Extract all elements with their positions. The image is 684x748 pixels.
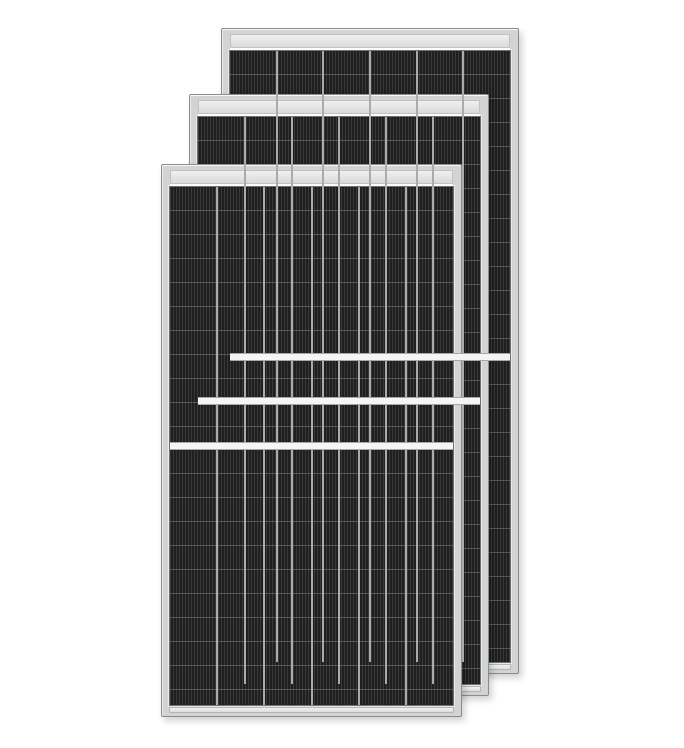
- scene-canvas: [0, 0, 684, 748]
- panel-cell-area: [169, 186, 454, 706]
- panel-center-divider: [170, 442, 453, 450]
- panel-frame-bottom-lip: [169, 707, 454, 713]
- panel-frame-top-band: [198, 100, 480, 114]
- panel-center-divider: [198, 397, 480, 405]
- panel-frame-top-band: [170, 170, 453, 184]
- panel-frame-top-band: [230, 34, 510, 48]
- panel-center-divider: [230, 353, 510, 361]
